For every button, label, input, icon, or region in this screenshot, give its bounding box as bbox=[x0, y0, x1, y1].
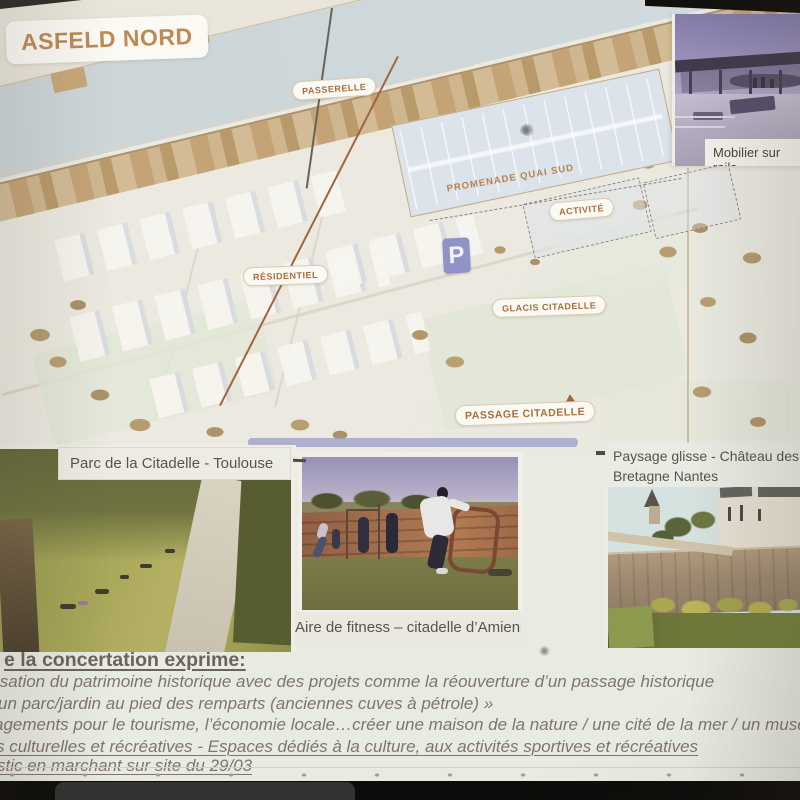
photo-aire-fitness-amiens bbox=[297, 452, 523, 615]
screen-rivets bbox=[0, 767, 800, 782]
shoe bbox=[436, 568, 448, 574]
person-on-lawn bbox=[140, 564, 152, 568]
caption-nantes-line1: Paysage glisse - Château des Ducs bbox=[613, 447, 800, 467]
lavender-strip bbox=[248, 438, 578, 447]
castle-window bbox=[758, 509, 761, 521]
person-silhouette bbox=[358, 517, 369, 553]
projected-slide-photo: ASFELD NORD PASSERELLE PROMENADE QUAI SU… bbox=[0, 0, 800, 800]
castle-roof bbox=[720, 487, 752, 498]
notes-heading: e la concertation exprime: bbox=[4, 649, 246, 672]
step-line bbox=[675, 126, 725, 128]
castle-window bbox=[740, 505, 743, 521]
caption-nantes: Paysage glisse - Château des Ducs Bretag… bbox=[605, 443, 800, 487]
picnic-blanket bbox=[78, 601, 88, 605]
person-silhouette bbox=[386, 513, 398, 553]
caption-mobilier: Mobilier sur rails bbox=[705, 139, 800, 166]
notes-line-2: un parc/jardin au pied des remparts (anc… bbox=[0, 694, 493, 714]
parking-icon: P bbox=[442, 237, 471, 273]
caption-nantes-line2: Bretagne Nantes bbox=[613, 467, 800, 487]
caption-toulouse: Parc de la Citadelle - Toulouse bbox=[58, 447, 291, 480]
fitness-machine bbox=[447, 505, 502, 576]
notes-line-3: agements pour le tourisme, l’économie lo… bbox=[0, 715, 800, 735]
person-on-lawn bbox=[165, 549, 175, 553]
fitness-frame-post bbox=[346, 509, 348, 559]
photo-chateau-ducs-nantes bbox=[605, 487, 800, 648]
screen-smudge bbox=[538, 646, 551, 656]
castle-roof bbox=[758, 487, 800, 497]
person-on-lawn bbox=[120, 575, 129, 579]
person-on-lawn bbox=[95, 589, 109, 594]
canopy-post bbox=[719, 70, 722, 97]
map-title-box: ASFELD NORD bbox=[5, 14, 208, 64]
map-title: ASFELD NORD bbox=[21, 23, 193, 55]
screen-smudge bbox=[520, 124, 536, 136]
fitness-frame-post bbox=[378, 504, 380, 559]
canopy-post bbox=[749, 70, 752, 97]
notes-line-1: isation du patrimoine historique avec de… bbox=[0, 672, 714, 692]
person-silhouette bbox=[753, 78, 757, 88]
map-label-glacis-citadelle: GLACIS CITADELLE bbox=[492, 295, 607, 318]
notes-line-4: s culturelles et récréatives - Espaces d… bbox=[0, 737, 698, 757]
caption-amiens: Aire de fitness – citadelle d’Amiens bbox=[295, 612, 521, 645]
map-label-residentiel: RÉSIDENTIEL bbox=[243, 265, 329, 287]
step-line bbox=[675, 116, 735, 118]
person-silhouette bbox=[770, 79, 774, 88]
bottom-reflection bbox=[55, 782, 355, 800]
frame-mark bbox=[293, 459, 306, 462]
photo-mobilier-sur-rails: Mobilier sur rails bbox=[672, 14, 800, 166]
person-silhouette bbox=[761, 77, 765, 88]
bench bbox=[488, 569, 512, 576]
fitness-frame-bar bbox=[346, 509, 380, 511]
canopy-post bbox=[689, 70, 692, 97]
lawn-patch bbox=[607, 605, 655, 648]
canopy-post bbox=[779, 70, 782, 97]
person-on-lawn bbox=[60, 604, 76, 609]
person-silhouette bbox=[332, 529, 340, 549]
